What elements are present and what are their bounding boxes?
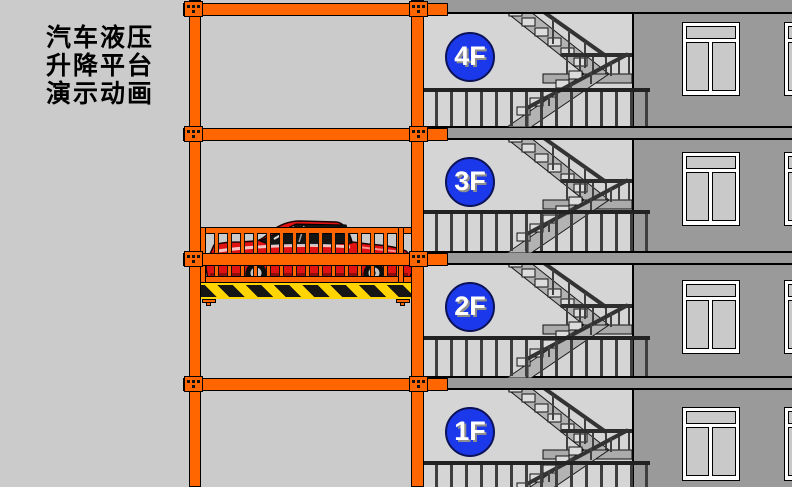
window-3f [682, 152, 740, 226]
window-2f-partial [784, 280, 792, 354]
floor-slab-4f [423, 126, 792, 140]
bolt-plate [184, 251, 203, 267]
floor-railing-4f-balusters [423, 92, 648, 126]
bolt-plate [184, 1, 203, 17]
title-line-3: 演示动画 [30, 80, 170, 108]
window-4f-partial [784, 22, 792, 96]
title-line-2: 升降平台 [30, 52, 170, 80]
floor-slab-2f [423, 376, 792, 390]
window-1f [682, 407, 740, 481]
window-3f-partial [784, 152, 792, 226]
bolt-plate [409, 126, 428, 142]
bolt-plate [409, 251, 428, 267]
hazard-strip [201, 283, 412, 299]
lift-demo-canvas: 汽车液压 升降平台 演示动画 [0, 0, 792, 487]
floor-railing-3f-balusters [423, 214, 648, 251]
bolt-plate [409, 1, 428, 17]
bolt-plate [184, 376, 203, 392]
floor-badge-2f: 2F [445, 282, 495, 332]
title-line-1: 汽车液压 [30, 24, 170, 52]
bolt-plate [409, 376, 428, 392]
frame-column-right [411, 0, 424, 487]
floor-badge-3f: 3F [445, 157, 495, 207]
floor-badge-1f: 1F [445, 407, 495, 457]
floor-badge-4f: 4F [445, 32, 495, 82]
window-1f-partial [784, 407, 792, 481]
roof-slab [423, 0, 792, 14]
floor-railing-1f-balusters [423, 465, 648, 487]
frame-column-left [189, 0, 201, 487]
floor-railing-2f-balusters [423, 340, 648, 376]
window-2f [682, 280, 740, 354]
title-text: 汽车液压 升降平台 演示动画 [30, 24, 170, 108]
bolt-plate [184, 126, 203, 142]
fence-bottom-rail [200, 276, 412, 283]
platform-foot-left-tab [206, 302, 211, 306]
floor-slab-3f [423, 251, 792, 265]
window-4f [682, 22, 740, 96]
platform-foot-right-tab [400, 302, 405, 306]
